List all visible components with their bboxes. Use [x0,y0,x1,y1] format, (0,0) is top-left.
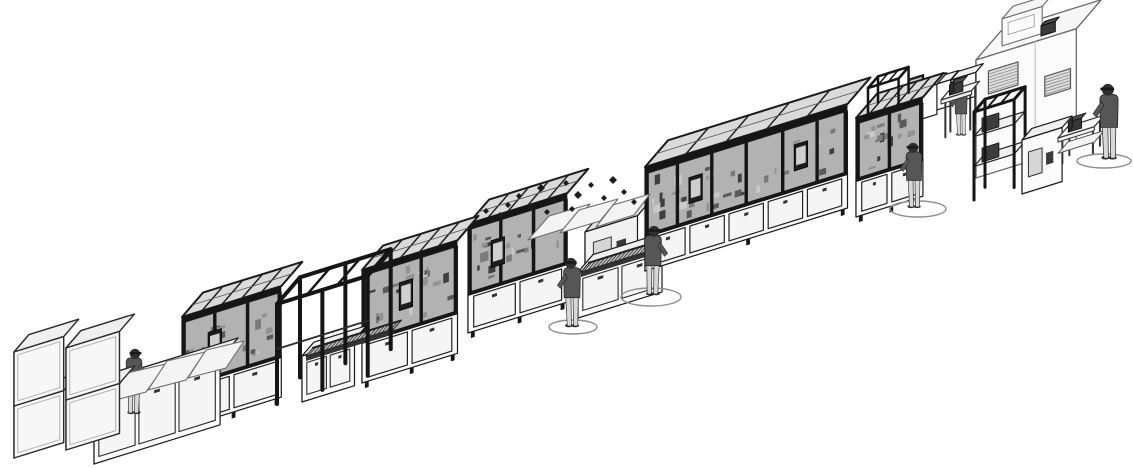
scene-svg [0,0,1133,468]
production-line-illustration [0,0,1133,468]
